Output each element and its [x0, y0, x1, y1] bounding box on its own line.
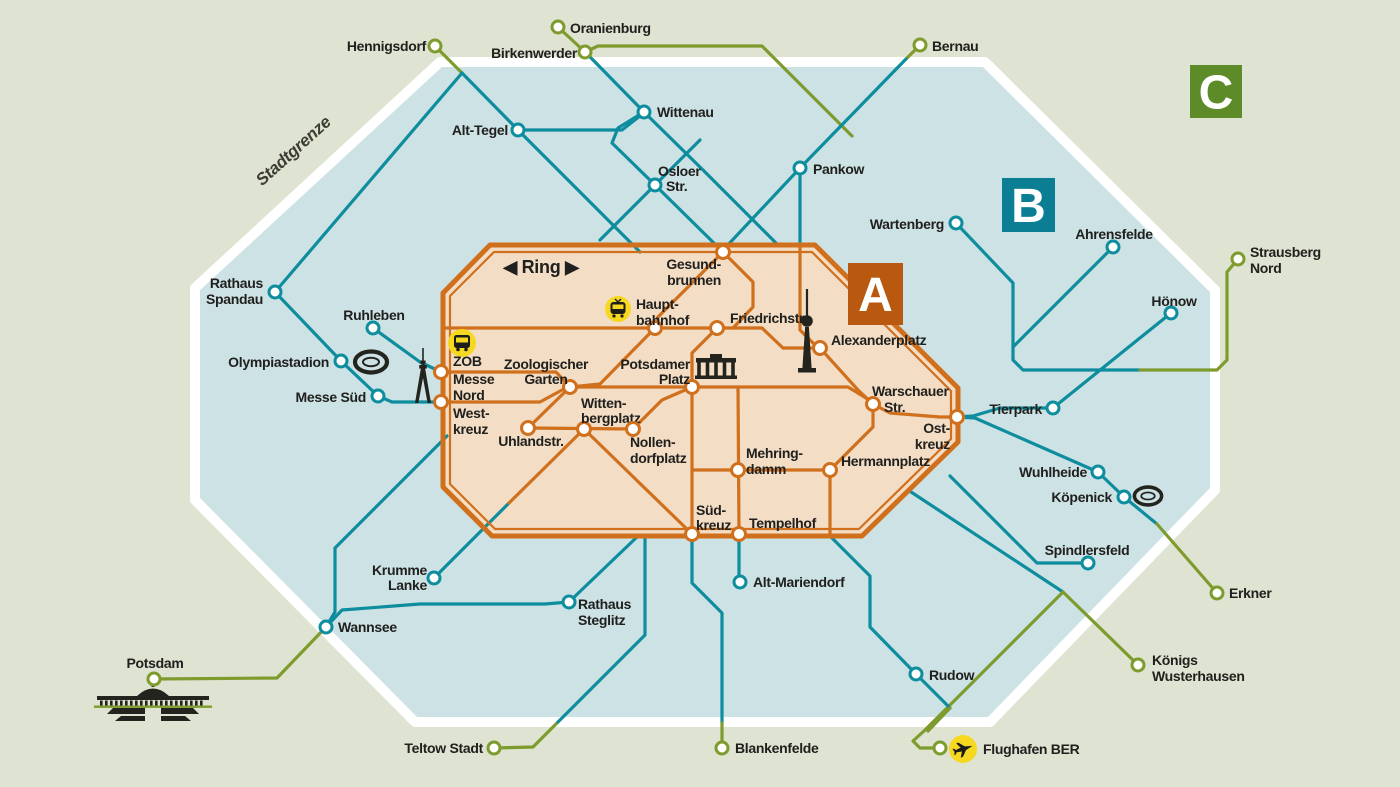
station-label: Steglitz [578, 612, 626, 628]
station-label: Blankenfelde [735, 740, 819, 756]
station-label: Zoologischer [504, 356, 589, 372]
station-dot [563, 596, 575, 608]
station-dot [1132, 659, 1144, 671]
station-dot [1092, 466, 1104, 478]
station-dot [579, 46, 591, 58]
station-alt-tegel: Alt-Tegel [452, 122, 524, 138]
station-dot [1118, 491, 1130, 503]
station-dot [934, 742, 946, 754]
map-canvas: OranienburgHennigsdorfBirkenwerderBernau… [0, 0, 1400, 787]
station-label: Ahrensfelde [1075, 226, 1153, 242]
station-dot [716, 742, 728, 754]
station-dot [732, 464, 745, 477]
station-label: Wuhlheide [1019, 464, 1087, 480]
station-label: Königs [1152, 652, 1198, 668]
station-label: West- [453, 405, 490, 421]
station-label: Potsdam [126, 655, 183, 671]
zone-badge-letter: A [858, 269, 893, 322]
station-label: Erkner [1229, 585, 1272, 601]
station-label: Spindlersfeld [1045, 542, 1130, 558]
station-label: Alt-Tegel [452, 122, 508, 138]
station-label: Krumme [372, 562, 428, 578]
station-label: Bernau [932, 38, 978, 54]
station-dot [1232, 253, 1244, 265]
station-label: Birkenwerder [491, 45, 578, 61]
station-dot [824, 464, 837, 477]
station-dot [950, 217, 962, 229]
station-label: Tempelhof [749, 515, 817, 531]
zone-badge-letter: B [1011, 180, 1046, 233]
station-label: Pankow [813, 161, 865, 177]
station-erkner: Erkner [1211, 585, 1272, 601]
station-dot [435, 366, 448, 379]
station-label: Str. [666, 178, 687, 194]
zone-badge-c: C [1190, 65, 1242, 120]
station-dot [1082, 557, 1094, 569]
station-dot [733, 528, 746, 541]
station-dot [734, 576, 746, 588]
station-dot [794, 162, 806, 174]
station-dot [1107, 241, 1119, 253]
station-label: Nollen- [630, 434, 676, 450]
zone-badge-letter: C [1199, 67, 1234, 120]
station-label: Alt-Mariendorf [753, 574, 845, 590]
station-label: damm [746, 461, 786, 477]
station-label: Warschauer [872, 383, 949, 399]
station-dot [335, 355, 347, 367]
plane-icon [949, 735, 977, 763]
station-dot [488, 742, 500, 754]
station-label: Hennigsdorf [347, 38, 427, 54]
station-label: Nord [453, 387, 484, 403]
station-label: Haupt- [636, 296, 679, 312]
zone-badge-b: B [1002, 178, 1055, 233]
station-label: Köpenick [1051, 489, 1112, 505]
station-birkenwerder: Birkenwerder [491, 45, 591, 61]
station-label: Mehring- [746, 445, 803, 461]
station-label: Gesund- [666, 256, 721, 272]
station-label: brunnen [667, 272, 721, 288]
station-dot [711, 322, 724, 335]
station-label: Strausberg [1250, 244, 1321, 260]
station-label: Wartenberg [870, 216, 944, 232]
station-dot [320, 621, 332, 633]
station-label: Rathaus [210, 275, 264, 291]
station-dot [552, 21, 564, 33]
station-label: Uhlandstr. [498, 433, 563, 449]
station-label: Messe [453, 371, 495, 387]
station-dot [372, 390, 384, 402]
station-dot [867, 398, 880, 411]
train-icon [605, 296, 631, 322]
station-label: Ruhleben [343, 307, 404, 323]
station-label: Oranienburg [570, 20, 651, 36]
station-dot [435, 396, 448, 409]
station-label: Olympiastadion [228, 354, 329, 370]
station-label: kreuz [915, 436, 950, 452]
station-dot [914, 39, 926, 51]
station-label: Messe Süd [296, 389, 366, 405]
station-dot [814, 342, 827, 355]
station-label: Alexanderplatz [831, 332, 927, 348]
station-label: Tierpark [989, 401, 1042, 417]
station-dot [429, 40, 441, 52]
station-label: kreuz [453, 421, 488, 437]
transit-line [738, 387, 739, 534]
station-label: Wittenau [657, 104, 714, 120]
station-dot [1047, 402, 1059, 414]
station-label: Hönow [1151, 293, 1197, 309]
station-dot [951, 411, 964, 424]
station-dot [649, 179, 661, 191]
station-label: Wusterhausen [1152, 668, 1245, 684]
station-label: Süd- [696, 502, 727, 518]
station-label: Str. [884, 399, 905, 415]
ring-label: ◀ Ring ▶ [502, 257, 580, 277]
station-label: kreuz [696, 517, 731, 533]
station-label: bahnhof [636, 312, 690, 328]
station-label: Potsdamer [620, 356, 691, 372]
station-dot [512, 124, 524, 136]
station-label: Spandau [206, 291, 263, 307]
station-label: Flughafen BER [983, 741, 1080, 757]
station-label: dorfplatz [630, 450, 687, 466]
station-label: Platz [659, 371, 690, 387]
station-dot [428, 572, 440, 584]
zone-badge-a: A [848, 263, 903, 325]
station-dot [1211, 587, 1223, 599]
station-dot [367, 322, 379, 334]
station-dot [638, 106, 650, 118]
station-label: Hermannplatz [841, 453, 930, 469]
station-label: Rathaus [578, 596, 632, 612]
station-label: Lanke [388, 577, 427, 593]
station-dot [910, 668, 922, 680]
station-label: Garten [524, 371, 567, 387]
station-label: Ost- [923, 420, 950, 436]
station-label: Nord [1250, 260, 1281, 276]
station-label: Osloer [658, 163, 701, 179]
station-label: Witten- [581, 395, 627, 411]
station-dot [269, 286, 281, 298]
station-label: ZOB [453, 353, 482, 369]
station-dot [148, 673, 160, 685]
station-label: Wannsee [338, 619, 397, 635]
station-label: Friedrichstr. [730, 310, 807, 326]
station-label: Rudow [929, 667, 975, 683]
fare-zone-map: OranienburgHennigsdorfBirkenwerderBernau… [0, 0, 1400, 787]
station-label: Teltow Stadt [404, 740, 483, 756]
